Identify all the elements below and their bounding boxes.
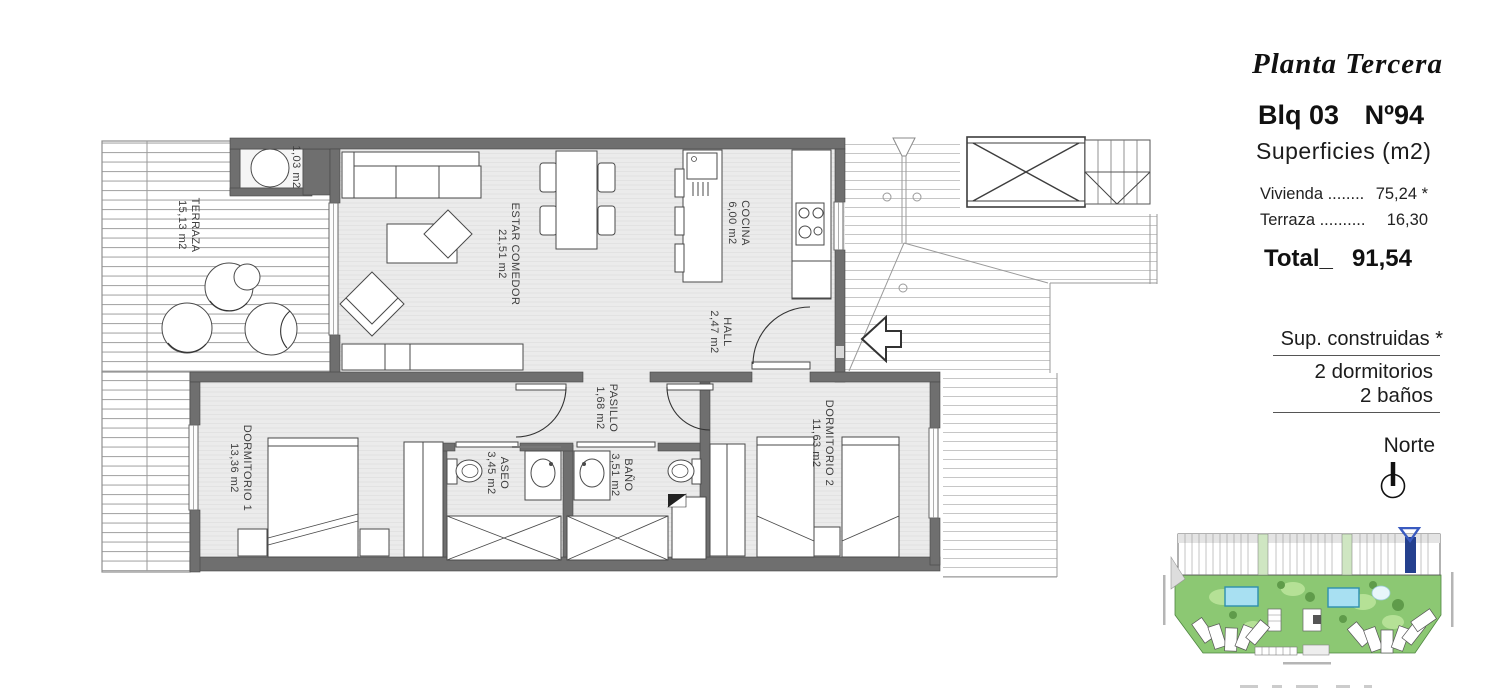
pasillo-door-leaf: [516, 384, 566, 390]
dining-table: [556, 151, 597, 249]
room-label-aseo: ASEO: [498, 457, 510, 490]
sofa: [342, 152, 479, 167]
terraza-label: Terraza ..........: [1260, 207, 1365, 233]
site-buildings-top: [1178, 534, 1440, 575]
room-label-closet: 1,03 m2: [290, 145, 302, 188]
dining-chair: [540, 206, 557, 235]
cropped-footer-marks: [1240, 685, 1450, 690]
pool: [1225, 587, 1258, 606]
nightstand: [814, 527, 840, 556]
kitchen-sink: [687, 153, 717, 179]
block-number: Blq 03: [1258, 100, 1339, 131]
aseo-sliding-door: [456, 442, 518, 447]
bano-sliding-door: [577, 442, 655, 447]
room-label-cocina: COCINA: [739, 200, 751, 246]
divider: [1273, 355, 1440, 356]
terraza-value: 16,30: [1387, 207, 1428, 233]
room-label-terraza: TERRAZA: [189, 198, 201, 253]
svg-text:11,63 m2: 11,63 m2: [810, 418, 822, 467]
sideboard: [342, 344, 523, 370]
svg-text:3,51 m2: 3,51 m2: [609, 453, 621, 496]
bathrooms-count: 2 baños: [1250, 384, 1445, 408]
room-label-hall: HALL: [721, 317, 733, 347]
dining-chair: [540, 163, 557, 192]
nightstand: [360, 529, 389, 556]
svg-text:1,68 m2: 1,68 m2: [594, 386, 606, 429]
north-compass-icon: [1377, 460, 1409, 500]
room-label-bano: BAÑO: [622, 458, 635, 491]
laundry-closet: [230, 149, 330, 196]
surfaces-heading: Superficies (m2): [1256, 138, 1431, 165]
svg-text:3,45 m2: 3,45 m2: [485, 451, 497, 494]
dining-chair: [598, 163, 615, 192]
svg-text:2,47 m2: 2,47 m2: [708, 310, 720, 353]
unit-number: Nº94: [1365, 100, 1424, 131]
double-bed: [268, 438, 358, 557]
pool: [1328, 588, 1359, 607]
vivienda-value: 75,24 *: [1376, 181, 1428, 207]
unit-identifier: Blq 03 Nº94: [1258, 100, 1424, 131]
terraza-row: Terraza .......... 16,30: [1260, 207, 1428, 233]
bedrooms-count: 2 dormitorios: [1250, 360, 1445, 384]
dining-chair: [598, 206, 615, 235]
nightstand: [238, 529, 267, 556]
total-value: 91,54: [1352, 245, 1412, 273]
built-summary: Sup. construidas * 2 dormitorios 2 baños: [1250, 328, 1445, 417]
surface-table: Vivienda ........ 75,24 * Terraza ......…: [1260, 181, 1428, 233]
single-bed: [757, 437, 814, 557]
bathroom-door-leaf: [667, 384, 713, 390]
entrance-door-leaf: [752, 362, 810, 369]
highlighted-unit: [1405, 537, 1416, 573]
bedroom1-furniture: [238, 438, 443, 557]
floor-plan: TERRAZA 15,13 m2 1,03 m2 ESTAR COMEDOR 2…: [0, 0, 1170, 690]
bedroom2-furniture: [710, 437, 899, 557]
stairs: [1085, 140, 1150, 204]
vivienda-row: Vivienda ........ 75,24 *: [1260, 181, 1428, 207]
room-label-estar: ESTAR COMEDOR: [509, 203, 521, 306]
svg-text:13,36 m2: 13,36 m2: [228, 443, 240, 493]
site-plan: [1163, 527, 1455, 667]
svg-text:6,00 m2: 6,00 m2: [726, 201, 738, 244]
street-caption-left: [1163, 575, 1166, 625]
street-caption-right: [1451, 572, 1454, 627]
room-label-dorm2: DORMITORIO 2: [823, 400, 835, 486]
room-label-dorm1: DORMITORIO 1: [241, 425, 253, 511]
vanity: [574, 451, 610, 500]
info-panel: Planta Tercera Blq 03 Nº94 Superficies (…: [1250, 42, 1445, 512]
vivienda-label: Vivienda ........: [1260, 181, 1364, 207]
total-label: Total_: [1264, 245, 1333, 273]
total-row: Total_ 91,54: [1264, 245, 1412, 273]
svg-text:15,13 m2: 15,13 m2: [176, 200, 188, 250]
divider: [1273, 412, 1440, 413]
floorplan-page: TERRAZA 15,13 m2 1,03 m2 ESTAR COMEDOR 2…: [0, 0, 1489, 690]
svg-text:21,51 m2: 21,51 m2: [496, 229, 508, 279]
north-label: Norte: [1250, 434, 1435, 458]
room-label-pasillo: PASILLO: [607, 384, 619, 433]
plan-title: Planta Tercera: [1250, 48, 1445, 81]
built-note: Sup. construidas *: [1250, 328, 1445, 351]
single-bed: [842, 437, 899, 557]
vanity: [525, 451, 561, 500]
toilet: [447, 459, 457, 484]
street-caption: [1283, 662, 1331, 665]
